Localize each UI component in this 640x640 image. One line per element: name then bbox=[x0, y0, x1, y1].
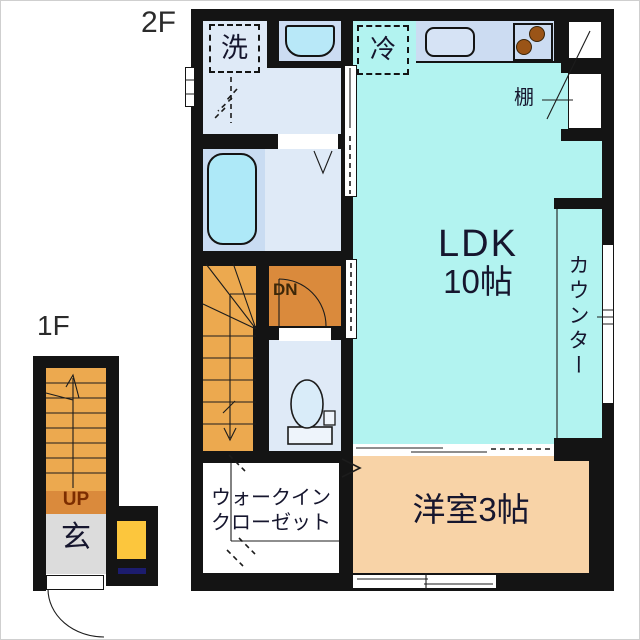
wall bbox=[552, 9, 568, 63]
wall bbox=[554, 198, 604, 209]
wall bbox=[561, 129, 604, 141]
floorplan-canvas: 洗 冷 bbox=[0, 0, 640, 640]
wall bbox=[561, 59, 604, 73]
shelf-box bbox=[568, 73, 602, 129]
wall bbox=[191, 9, 614, 21]
door-swing-arc bbox=[48, 589, 104, 637]
washing-machine-box: 洗 bbox=[209, 24, 260, 73]
walkin-closet-label-2: クローゼット bbox=[203, 513, 339, 534]
washer-label: 洗 bbox=[221, 34, 248, 62]
kitchen-sink bbox=[425, 27, 475, 57]
toilet-door-opening bbox=[279, 328, 331, 341]
room-bath-shower-zone bbox=[265, 149, 341, 251]
fridge-label: 冷 bbox=[370, 36, 396, 63]
sliding-door-ldk-western bbox=[353, 444, 554, 456]
fridge-box: 冷 bbox=[357, 25, 409, 75]
stove-burner bbox=[516, 39, 532, 55]
wall bbox=[256, 263, 269, 329]
stairs-1f bbox=[46, 368, 106, 491]
wall bbox=[106, 356, 119, 518]
wall bbox=[589, 451, 614, 591]
counter-label: カウンター bbox=[566, 254, 588, 424]
wall bbox=[554, 438, 614, 461]
wall bbox=[253, 326, 269, 456]
shelf-label: 棚 bbox=[514, 88, 534, 109]
up-label: UP bbox=[46, 490, 106, 510]
entrance-door-leaf bbox=[46, 575, 104, 590]
entrance-label: 玄 bbox=[46, 522, 106, 554]
walkin-closet-label-1: ウォークイン bbox=[203, 488, 339, 509]
dn-label: DN bbox=[273, 281, 298, 299]
shoe-cabinet bbox=[115, 519, 148, 561]
floor-label-2f: 2F bbox=[141, 7, 176, 39]
bathtub bbox=[207, 153, 257, 245]
floor-label-1f: 1F bbox=[37, 311, 70, 340]
western-room-label: 洋室3帖 bbox=[353, 493, 589, 528]
navy-accent bbox=[118, 568, 146, 574]
window-western bbox=[353, 575, 496, 588]
stairs-2f bbox=[203, 263, 256, 451]
room-toilet bbox=[269, 340, 341, 451]
door-opening bbox=[278, 134, 338, 149]
sliding-door bbox=[344, 65, 357, 197]
window bbox=[602, 244, 614, 404]
wall bbox=[339, 451, 353, 591]
wall bbox=[191, 451, 353, 463]
wall bbox=[191, 251, 353, 266]
wall bbox=[267, 21, 279, 61]
window bbox=[185, 67, 195, 107]
wall bbox=[33, 573, 46, 591]
wash-basin bbox=[285, 25, 335, 57]
shelf-box bbox=[568, 21, 602, 59]
wall bbox=[33, 356, 46, 591]
stove-burner bbox=[529, 26, 545, 42]
